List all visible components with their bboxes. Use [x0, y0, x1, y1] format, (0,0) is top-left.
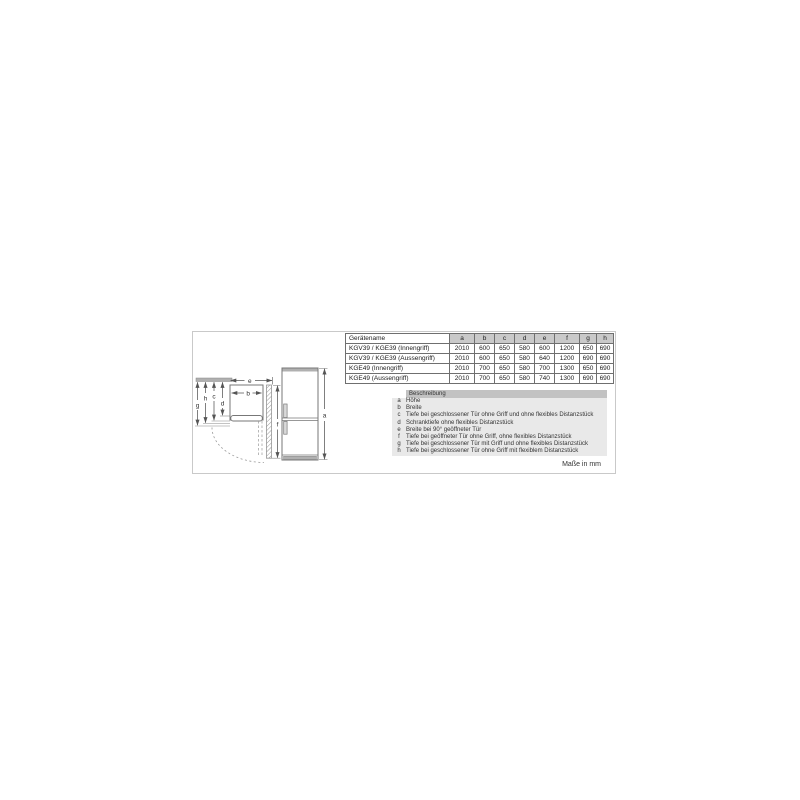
value-a: 2010 [450, 374, 475, 384]
value-a: 2010 [450, 344, 475, 354]
legend-key: a [392, 398, 406, 405]
value-b: 700 [475, 374, 495, 384]
dim-label-g: g [196, 403, 200, 410]
legend-key: h [392, 448, 406, 455]
value-e: 740 [535, 374, 555, 384]
dim-label-b: b [246, 390, 250, 397]
legend-key: b [392, 405, 406, 412]
dim-label-h: h [204, 396, 208, 403]
dimension-table: Gerätename a b c d e f g h KGV39 / KGE39… [345, 333, 614, 384]
table-row: KGE49 (Innengriff) 2010 700 650 580 700 … [346, 364, 614, 374]
legend-header: Beschreibung [406, 390, 607, 398]
value-d: 580 [515, 364, 535, 374]
column-header-g: g [580, 334, 597, 344]
value-b: 600 [475, 344, 495, 354]
value-f: 1300 [555, 364, 580, 374]
legend-item: e Breite bei 90° geöffneter Tür [392, 427, 607, 434]
legend-item: d Schranktiefe ohne flexibles Distanzstü… [392, 420, 607, 427]
top-view [196, 378, 272, 463]
column-header-a: a [450, 334, 475, 344]
value-e: 600 [535, 344, 555, 354]
column-header-geraetename: Gerätename [346, 334, 450, 344]
value-c: 650 [495, 354, 515, 364]
table-header-row: Gerätename a b c d e f g h [346, 334, 614, 344]
legend: Beschreibung a Höhe b Breite c Tiefe bei… [392, 390, 607, 456]
value-h: 690 [597, 344, 614, 354]
legend-item: c Tiefe bei geschlossener Tür ohne Griff… [392, 412, 607, 419]
value-a: 2010 [450, 364, 475, 374]
units-note: Maße in mm [562, 461, 601, 468]
value-c: 650 [495, 344, 515, 354]
door-swing-arc [212, 428, 264, 463]
value-d: 580 [515, 374, 535, 384]
upper-door-handle [284, 404, 287, 418]
legend-key: c [392, 412, 406, 419]
legend-item: h Tiefe bei geschlossener Tür ohne Griff… [392, 448, 607, 455]
column-header-b: b [475, 334, 495, 344]
fridge-top-cap [283, 369, 318, 372]
legend-text: Tiefe bei geschlossener Tür ohne Griff u… [406, 412, 607, 419]
closed-door [231, 416, 262, 422]
model-name: KGE49 (Innengriff) [346, 364, 450, 374]
value-c: 650 [495, 364, 515, 374]
value-h: 690 [597, 364, 614, 374]
legend-item: f Tiefe bei geöffneter Tür ohne Griff, o… [392, 434, 607, 441]
legend-item: a Höhe [392, 398, 607, 405]
dim-label-f: f [277, 422, 279, 429]
table-row: KGV39 / KGE39 (Innengriff) 2010 600 650 … [346, 344, 614, 354]
legend-text: Tiefe bei geschlossener Tür ohne Griff m… [406, 448, 607, 455]
page: e b g h c d f a Gerätename a b c d [0, 0, 800, 800]
spec-panel: e b g h c d f a Gerätename a b c d [192, 331, 616, 474]
column-header-d: d [515, 334, 535, 344]
value-e: 640 [535, 354, 555, 364]
legend-header-corner [392, 390, 406, 398]
value-f: 1200 [555, 354, 580, 364]
dim-label-a: a [323, 413, 327, 420]
value-d: 580 [515, 354, 535, 364]
value-f: 1300 [555, 374, 580, 384]
wall-bar [196, 378, 232, 382]
legend-text: Höhe [406, 398, 607, 405]
value-f: 1200 [555, 344, 580, 354]
value-b: 700 [475, 364, 495, 374]
open-door [267, 385, 272, 458]
model-name: KGE49 (Aussengriff) [346, 374, 450, 384]
legend-key: d [392, 420, 406, 427]
legend-text: Breite bei 90° geöffneter Tür [406, 427, 607, 434]
legend-item: b Breite [392, 405, 607, 412]
dim-label-d: d [221, 401, 225, 408]
value-b: 600 [475, 354, 495, 364]
lower-door-handle [284, 421, 287, 434]
value-h: 690 [597, 354, 614, 364]
model-name: KGV39 / KGE39 (Innengriff) [346, 344, 450, 354]
legend-text: Tiefe bei geschlossener Tür mit Griff un… [406, 441, 607, 448]
value-g: 650 [580, 344, 597, 354]
value-e: 700 [535, 364, 555, 374]
value-c: 650 [495, 374, 515, 384]
column-header-c: c [495, 334, 515, 344]
column-header-f: f [555, 334, 580, 344]
legend-key: f [392, 434, 406, 441]
dim-label-e: e [248, 378, 252, 385]
column-header-e: e [535, 334, 555, 344]
value-h: 690 [597, 374, 614, 384]
dim-label-c: c [212, 394, 216, 401]
table-row: KGV39 / KGE39 (Aussengriff) 2010 600 650… [346, 354, 614, 364]
legend-text: Tiefe bei geöffneter Tür ohne Griff, ohn… [406, 434, 607, 441]
value-d: 580 [515, 344, 535, 354]
legend-header-row: Beschreibung [392, 390, 607, 398]
legend-key: g [392, 441, 406, 448]
legend-text: Schranktiefe ohne flexibles Distanzstück [406, 420, 607, 427]
table-row: KGE49 (Aussengriff) 2010 700 650 580 740… [346, 374, 614, 384]
value-a: 2010 [450, 354, 475, 364]
value-g: 690 [580, 354, 597, 364]
legend-key: e [392, 427, 406, 434]
plinth [284, 456, 317, 459]
legend-text: Breite [406, 405, 607, 412]
front-view [282, 368, 318, 460]
column-header-h: h [597, 334, 614, 344]
value-g: 650 [580, 364, 597, 374]
value-g: 690 [580, 374, 597, 384]
model-name: KGV39 / KGE39 (Aussengriff) [346, 354, 450, 364]
legend-item: g Tiefe bei geschlossener Tür mit Griff … [392, 441, 607, 448]
